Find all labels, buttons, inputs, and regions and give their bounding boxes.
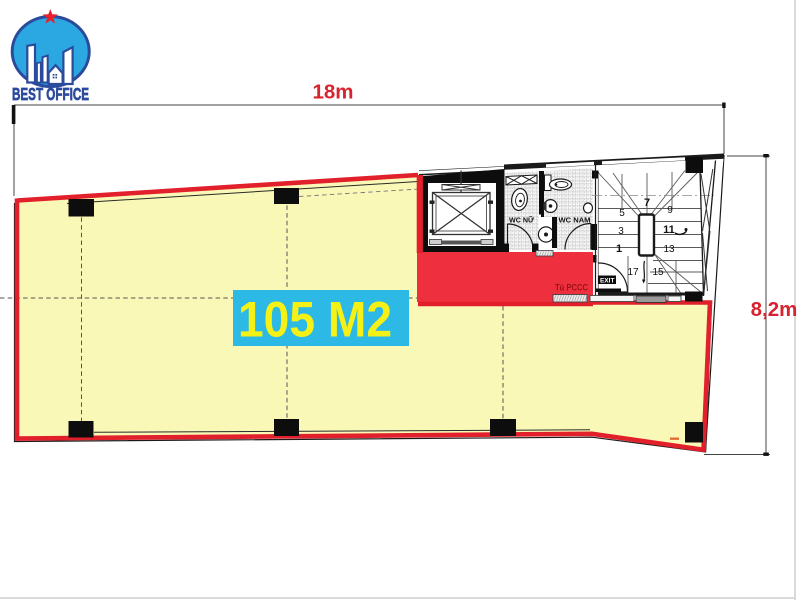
- svg-text:13: 13: [663, 244, 675, 255]
- svg-text:17: 17: [627, 267, 639, 278]
- svg-text:11: 11: [663, 224, 675, 236]
- svg-text:WC NỮ: WC NỮ: [509, 216, 535, 225]
- svg-text:9: 9: [667, 205, 673, 216]
- svg-text:EXIT: EXIT: [600, 278, 614, 285]
- svg-text:8,2m: 8,2m: [751, 298, 798, 321]
- svg-text:3: 3: [618, 226, 624, 237]
- svg-text:WC NAM: WC NAM: [559, 216, 591, 225]
- svg-text:105 M2: 105 M2: [238, 292, 392, 348]
- svg-text:1: 1: [616, 243, 622, 255]
- svg-text:7: 7: [644, 197, 650, 209]
- svg-text:18m: 18m: [312, 81, 353, 104]
- svg-text:15: 15: [652, 267, 664, 278]
- svg-text:5: 5: [619, 208, 625, 219]
- svg-text:Tủ PCCC: Tủ PCCC: [555, 283, 588, 293]
- svg-text:BEST OFFICE: BEST OFFICE: [12, 84, 89, 104]
